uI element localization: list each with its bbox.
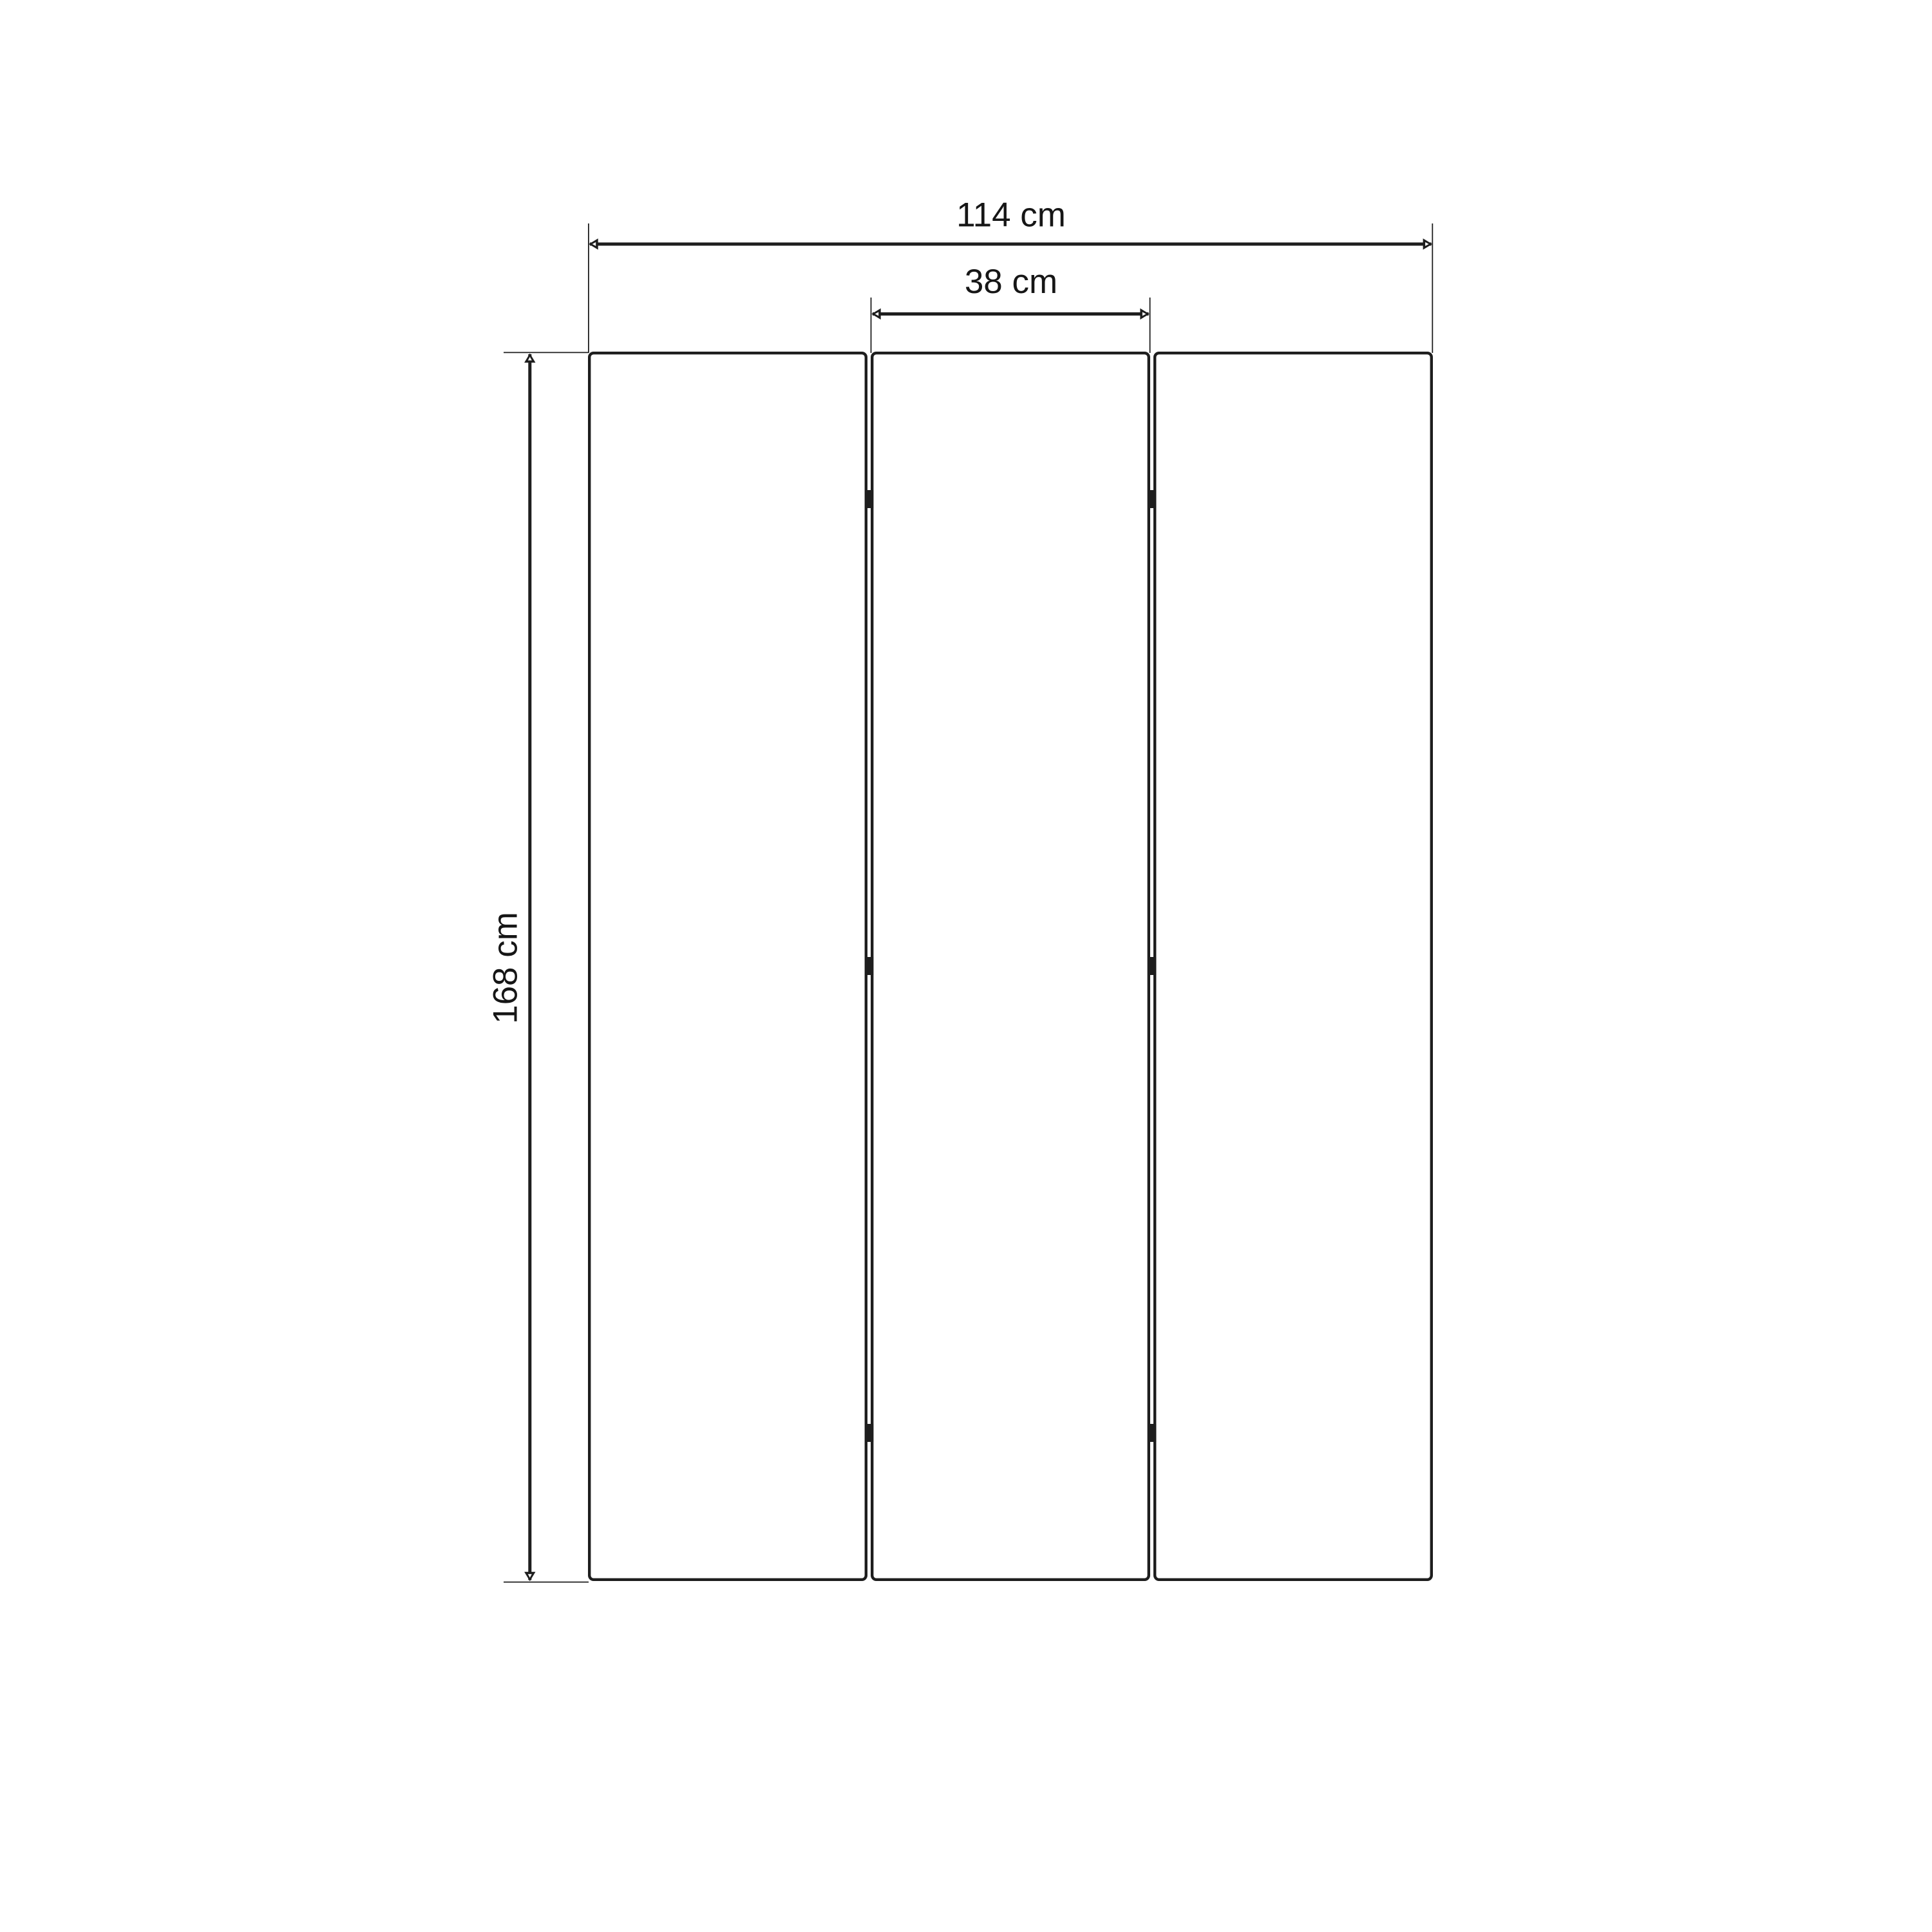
svg-text:114 cm: 114 cm — [956, 196, 1066, 234]
svg-text:168 cm: 168 cm — [487, 912, 525, 1024]
svg-text:38 cm: 38 cm — [965, 263, 1057, 301]
